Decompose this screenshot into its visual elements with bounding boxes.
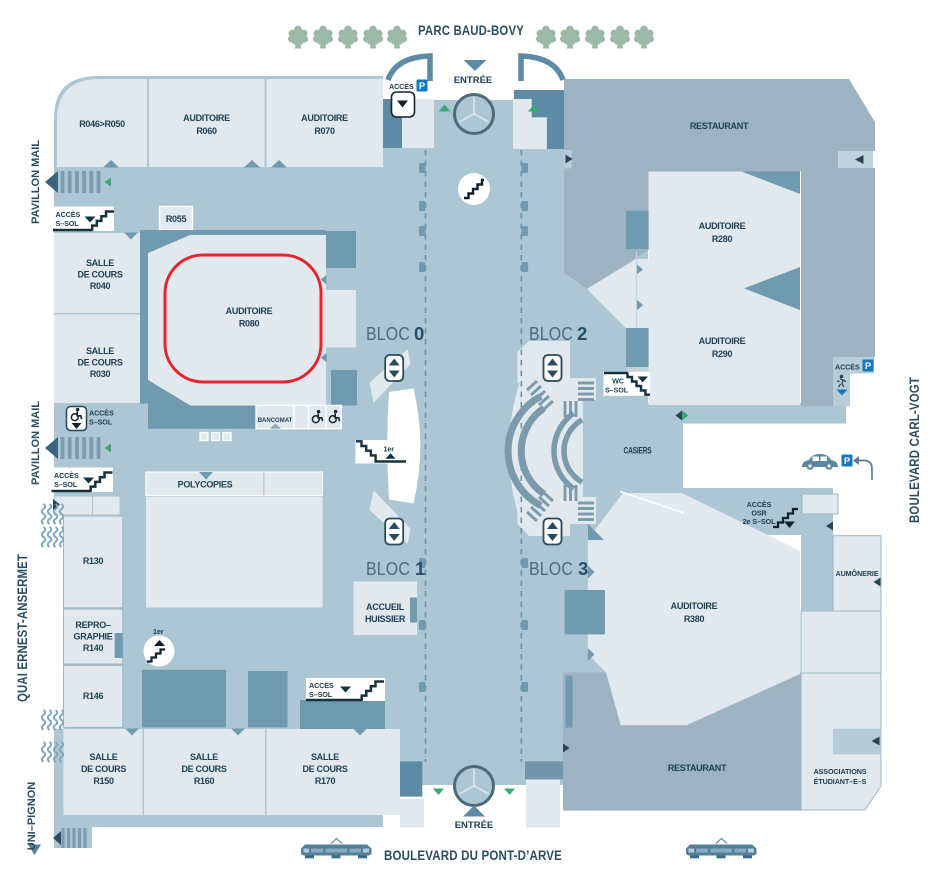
- svg-text:BOULEVARD DU PONT-D’ARVE: BOULEVARD DU PONT-D’ARVE: [384, 848, 562, 863]
- svg-text:R380: R380: [684, 614, 705, 624]
- svg-text:SALLE: SALLE: [311, 752, 339, 762]
- svg-text:ENTRÉE: ENTRÉE: [454, 75, 493, 86]
- svg-text:R160: R160: [194, 776, 215, 786]
- svg-text:3: 3: [578, 558, 589, 579]
- svg-text:R055: R055: [166, 214, 187, 224]
- svg-text:DE COURS: DE COURS: [81, 764, 126, 774]
- svg-text:REPRO–: REPRO–: [75, 620, 111, 630]
- svg-text:BANCOMAT: BANCOMAT: [258, 418, 293, 424]
- svg-text:2: 2: [577, 323, 588, 344]
- svg-text:S–SOL: S–SOL: [89, 418, 113, 427]
- svg-text:SALLE: SALLE: [86, 258, 114, 268]
- svg-text:BLOC: BLOC: [366, 558, 410, 579]
- svg-text:1er: 1er: [384, 445, 395, 454]
- svg-text:RESTAURANT: RESTAURANT: [690, 121, 749, 131]
- svg-text:SALLE: SALLE: [190, 752, 218, 762]
- svg-text:BOULEVARD CARL-VOGT: BOULEVARD CARL-VOGT: [907, 377, 922, 523]
- svg-text:BLOC: BLOC: [529, 323, 573, 344]
- svg-text:R170: R170: [315, 776, 336, 786]
- svg-text:PAVILLON MAIL: PAVILLON MAIL: [30, 140, 42, 224]
- svg-text:R070: R070: [314, 126, 335, 136]
- svg-text:R290: R290: [712, 349, 733, 359]
- svg-text:AUMÔNERIE: AUMÔNERIE: [835, 569, 878, 578]
- svg-text:1er: 1er: [153, 627, 164, 636]
- svg-text:SALLE: SALLE: [86, 346, 114, 356]
- svg-text:AUDITOIRE: AUDITOIRE: [671, 601, 718, 611]
- svg-text:R030: R030: [90, 369, 111, 379]
- svg-text:R060: R060: [196, 126, 217, 136]
- svg-text:R140: R140: [83, 643, 104, 653]
- svg-text:AUDITOIRE: AUDITOIRE: [183, 113, 230, 123]
- svg-text:CASIERS: CASIERS: [624, 446, 652, 456]
- svg-text:DE COURS: DE COURS: [77, 358, 122, 368]
- svg-text:AUDITOIRE: AUDITOIRE: [226, 306, 273, 316]
- svg-text:ACCÈS: ACCÈS: [56, 210, 81, 219]
- svg-text:SALLE: SALLE: [89, 752, 117, 762]
- svg-text:PARC BAUD-BOVY: PARC BAUD-BOVY: [418, 23, 524, 38]
- svg-text:AUDITOIRE: AUDITOIRE: [301, 113, 348, 123]
- svg-text:R280: R280: [712, 234, 733, 244]
- svg-text:RESTAURANT: RESTAURANT: [668, 763, 727, 773]
- svg-text:0: 0: [414, 323, 425, 344]
- svg-text:R146: R146: [83, 691, 104, 701]
- svg-text:UNI–PIGNON: UNI–PIGNON: [26, 782, 38, 851]
- svg-text:ACCÈS: ACCÈS: [89, 409, 114, 418]
- svg-text:ACCÈS: ACCÈS: [389, 82, 414, 91]
- svg-text:AUDITOIRE: AUDITOIRE: [699, 336, 746, 346]
- svg-text:HUISSIER: HUISSIER: [365, 614, 406, 624]
- svg-text:S–SOL: S–SOL: [56, 219, 80, 228]
- svg-text:R130: R130: [83, 556, 104, 566]
- svg-text:2e S–SOL: 2e S–SOL: [743, 517, 776, 526]
- svg-text:ÉTUDIANT–E–S: ÉTUDIANT–E–S: [814, 777, 867, 786]
- svg-text:ACCÈS: ACCÈS: [54, 471, 79, 480]
- svg-text:POLYCOPIES: POLYCOPIES: [178, 480, 233, 490]
- svg-text:BLOC: BLOC: [366, 323, 410, 344]
- svg-text:R080: R080: [239, 319, 260, 329]
- svg-text:ACCÈS: ACCÈS: [309, 681, 334, 690]
- svg-text:ASSOCIATIONS: ASSOCIATIONS: [814, 767, 867, 776]
- svg-text:R150: R150: [93, 776, 114, 786]
- svg-text:ACCUEIL: ACCUEIL: [366, 602, 405, 612]
- svg-text:DE COURS: DE COURS: [77, 270, 122, 280]
- svg-text:S–SOL: S–SOL: [309, 690, 333, 699]
- svg-text:BLOC: BLOC: [529, 558, 573, 579]
- svg-text:S–SOL: S–SOL: [605, 386, 629, 395]
- svg-text:DE COURS: DE COURS: [302, 764, 347, 774]
- svg-text:GRAPHIE: GRAPHIE: [74, 632, 113, 642]
- svg-text:WC: WC: [612, 377, 624, 386]
- svg-text:ENTRÉE: ENTRÉE: [455, 820, 494, 831]
- svg-text:S–SOL: S–SOL: [54, 480, 78, 489]
- svg-text:PAVILLON MAIL: PAVILLON MAIL: [30, 401, 42, 485]
- svg-text:ACCÈS: ACCÈS: [835, 363, 860, 372]
- svg-text:DE COURS: DE COURS: [181, 764, 226, 774]
- svg-text:R040: R040: [90, 281, 111, 291]
- svg-text:AUDITOIRE: AUDITOIRE: [699, 221, 746, 231]
- svg-text:QUAI ERNEST-ANSERMET: QUAI ERNEST-ANSERMET: [15, 554, 30, 702]
- svg-text:R046>R050: R046>R050: [79, 119, 125, 129]
- svg-text:1: 1: [415, 558, 426, 579]
